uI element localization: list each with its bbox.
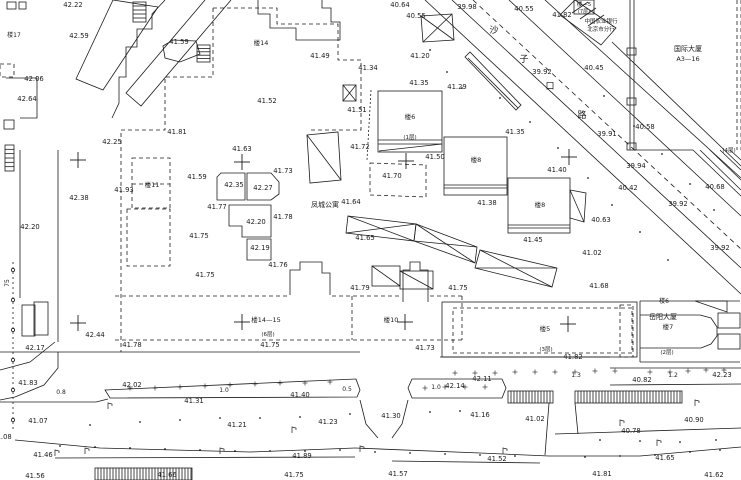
spot-elevation-label: 39.91 xyxy=(597,130,616,138)
point-dot xyxy=(599,439,601,441)
boundary-dashed-line xyxy=(213,8,361,85)
point-dot xyxy=(259,417,261,419)
building-outline xyxy=(7,2,16,9)
structure-line xyxy=(372,266,400,286)
structure-line xyxy=(575,403,578,434)
streetlamp-icon xyxy=(55,450,59,456)
spot-elevation-label: 42.20 xyxy=(20,223,39,231)
spot-elevation-label: 41.59 xyxy=(187,173,206,181)
point-dot xyxy=(164,448,166,450)
building-number-label: (1层) xyxy=(403,134,416,141)
place-name-label: 75 xyxy=(4,279,11,287)
structure-line xyxy=(0,352,58,400)
spot-elevation-label: 42.22 xyxy=(63,1,82,9)
building-number-label: 楼6 xyxy=(405,112,416,121)
spot-elevation-label: 42.11 xyxy=(472,375,491,383)
spot-elevation-label: 41.30 xyxy=(381,412,400,420)
point-dot xyxy=(429,49,431,51)
spot-elevation-label: 41.93 xyxy=(114,186,133,194)
building-outline xyxy=(4,120,14,129)
structure-line xyxy=(545,403,549,455)
spot-elevation-label: 41.62 xyxy=(704,471,723,479)
spot-elevation-label: 39.92 xyxy=(710,244,729,252)
spot-elevation-label: 41.78 xyxy=(273,213,292,221)
point-dot xyxy=(529,121,531,123)
spot-elevation-label: 41.49 xyxy=(310,52,329,60)
building-number-label: (2层) xyxy=(660,349,673,356)
spot-elevation-label: 41.20 xyxy=(410,52,429,60)
spot-elevation-label: 41.35 xyxy=(409,79,428,87)
spot-elevation-label: 41.16 xyxy=(470,411,489,419)
point-dot xyxy=(479,454,481,456)
streetlamp-icon xyxy=(85,448,89,454)
spot-elevation-label: 41.81 xyxy=(167,128,186,136)
point-dot xyxy=(667,259,669,261)
point-dot xyxy=(689,451,691,453)
building-number-label: 楼11 xyxy=(145,180,160,189)
building-outline xyxy=(627,48,636,55)
structure-line xyxy=(700,315,717,348)
spot-elevation-label: 41.59 xyxy=(169,38,188,46)
point-dot xyxy=(374,451,376,453)
point-dot xyxy=(429,411,431,413)
spot-elevation-label: 42.17 xyxy=(25,344,44,352)
point-dot xyxy=(619,455,621,457)
streetlamp-icon xyxy=(657,440,661,446)
site-plan-canvas[interactable]: 42.2242.5941.5942.0642.6441.4941.3441.52… xyxy=(0,0,741,480)
structure-line xyxy=(480,250,552,287)
spot-elevation-label: 41.75 xyxy=(189,232,208,240)
structure-line xyxy=(545,0,741,178)
distance-label: 0.5 xyxy=(342,386,352,393)
structure-line xyxy=(96,399,108,402)
hatched-wall xyxy=(95,468,192,480)
streetlamp-icon xyxy=(695,400,699,406)
spot-elevation-label: 41.40 xyxy=(290,391,309,399)
building-outline xyxy=(34,302,48,335)
spot-elevation-label: 41.76 xyxy=(268,261,287,269)
spot-elevation-label: 41.23 xyxy=(318,418,337,426)
spot-elevation-label: 41.34 xyxy=(358,64,377,72)
streetlamp-icon xyxy=(108,403,112,409)
streetlamp-icon xyxy=(292,427,296,433)
structure-line xyxy=(416,224,475,263)
spot-elevation-label: 39.92 xyxy=(532,68,551,76)
point-dot xyxy=(611,204,613,206)
building-number-label: 楼8 xyxy=(471,155,482,164)
spot-elevation-label: 42.38 xyxy=(69,194,88,202)
place-name-label: 国际大厦 xyxy=(674,44,702,53)
building-number-label: 楼8 xyxy=(535,200,546,209)
streetlamp-icon xyxy=(620,420,624,426)
spot-elevation-label: 41.40 xyxy=(547,166,566,174)
spot-elevation-label: 40.55 xyxy=(514,5,533,13)
spot-elevation-label: 41.52 xyxy=(257,97,276,105)
spot-elevation-label: 41.78 xyxy=(122,341,141,349)
spot-elevation-label: 41.35 xyxy=(505,128,524,136)
point-dot xyxy=(639,231,641,233)
structure-line xyxy=(570,190,584,222)
streetlamp-icon xyxy=(360,446,364,452)
spot-elevation-label: 41.70 xyxy=(382,172,401,180)
structure-line xyxy=(290,262,330,295)
structure-line xyxy=(468,58,518,108)
spot-elevation-label: 41.81 xyxy=(592,470,611,478)
structure-line xyxy=(695,301,727,312)
spot-elevation-label: 41.65 xyxy=(355,234,374,242)
distance-label: 1.2 xyxy=(668,372,678,379)
spot-elevation-label: 41.51 xyxy=(347,106,366,114)
spot-elevation-label: 41.07 xyxy=(28,417,47,425)
place-name-label: 岳阳大厦 xyxy=(649,312,677,321)
building-number-label: 楼10 xyxy=(384,315,399,324)
distance-label: 1.3 xyxy=(571,372,581,379)
spot-elevation-label: 41.50 xyxy=(425,153,444,161)
building-outline-dashed xyxy=(620,305,633,357)
point-dot xyxy=(139,421,141,423)
building-outline-dashed xyxy=(127,209,170,266)
spot-elevation-label: 40.45 xyxy=(584,64,603,72)
spot-elevation-label: 40.64 xyxy=(390,1,409,9)
spot-elevation-label: 41.75 xyxy=(284,471,303,479)
point-dot xyxy=(219,417,221,419)
spot-elevation-label: 39.92 xyxy=(668,200,687,208)
spot-elevation-label: 41.72 xyxy=(350,143,369,151)
structure-line xyxy=(346,224,416,233)
spot-elevation-label: 42.23 xyxy=(712,371,731,379)
spot-elevation-label: 41.56 xyxy=(25,472,44,480)
spot-elevation-label: 42.35 xyxy=(224,181,243,189)
spot-elevation-label: 42.64 xyxy=(17,95,36,103)
road-name-char: 子 xyxy=(519,54,528,65)
spot-elevation-label: 41.77 xyxy=(207,203,226,211)
point-dot xyxy=(199,449,201,451)
spot-elevation-label: 40.82 xyxy=(632,376,651,384)
spot-elevation-label: 39.98 xyxy=(457,3,476,11)
building-number-label: 楼6 xyxy=(659,297,669,305)
spot-elevation-label: 40.42 xyxy=(618,184,637,192)
point-dot xyxy=(444,453,446,455)
building-number-label: (6层) xyxy=(261,331,274,338)
point-dot xyxy=(587,177,589,179)
spot-elevation-label: 41.02 xyxy=(582,249,601,257)
streetlamp-icon xyxy=(503,448,507,454)
point-dot xyxy=(129,447,131,449)
building-outline xyxy=(444,137,507,195)
spot-elevation-label: 41.73 xyxy=(273,167,292,175)
spot-elevation-label: 41.57 xyxy=(388,470,407,478)
spot-elevation-label: 41.21 xyxy=(227,421,246,429)
building-outline-dashed xyxy=(0,64,14,77)
distance-label: 1.0 xyxy=(431,384,441,391)
building-outline xyxy=(22,305,35,336)
structure-line xyxy=(379,144,442,151)
point-dot xyxy=(446,71,448,73)
spot-elevation-label: 41.89 xyxy=(292,452,311,460)
structure-line xyxy=(403,262,428,302)
spot-elevation-label: 41.83 xyxy=(18,379,37,387)
point-dot xyxy=(179,419,181,421)
place-name-label: A3—16 xyxy=(676,55,699,63)
spot-elevation-label: 41.46 xyxy=(33,451,52,459)
spot-elevation-label: 42.25 xyxy=(102,138,121,146)
spot-elevation-label: 41.08 xyxy=(0,433,12,441)
building-number-label: (4层) xyxy=(722,147,735,154)
point-dot xyxy=(349,413,351,415)
road-name-char: 沙 xyxy=(489,25,498,36)
spot-elevation-label: 41.79 xyxy=(350,284,369,292)
point-dot xyxy=(689,183,691,185)
building-number-label: 楼7 xyxy=(663,322,674,331)
point-dot xyxy=(584,456,586,458)
point-dot xyxy=(719,449,721,451)
spot-elevation-label: 42.27 xyxy=(253,184,272,192)
road-name-char: 路 xyxy=(577,109,586,121)
point-dot xyxy=(339,449,341,451)
spot-elevation-label: 42.44 xyxy=(85,331,104,339)
spot-elevation-label: 42.14 xyxy=(445,382,464,390)
place-name-label: 中国农业银行 xyxy=(584,17,618,25)
spot-elevation-label: 41.82 xyxy=(563,353,582,361)
building-number-label: 楼—5 xyxy=(577,0,592,8)
spot-elevation-label: 41.66 xyxy=(157,471,176,479)
spot-elevation-label: 40.78 xyxy=(621,427,640,435)
point-dot xyxy=(299,416,301,418)
spot-elevation-label: 40.58 xyxy=(635,123,654,131)
building-outline xyxy=(718,313,740,328)
spot-elevation-label: 41.29 xyxy=(447,83,466,91)
spot-elevation-label: 41.75 xyxy=(448,284,467,292)
building-number-label: (7层) xyxy=(578,9,590,15)
cad-drawing-window: 42.2242.5941.5942.0642.6441.4941.3441.52… xyxy=(0,0,741,480)
boundary-dashed-line xyxy=(473,0,741,249)
structure-line xyxy=(105,379,360,398)
spot-elevation-label: 42.06 xyxy=(24,75,43,83)
point-dot xyxy=(514,455,516,457)
spot-elevation-label: 41.64 xyxy=(341,198,360,206)
structure-line xyxy=(126,0,231,106)
spot-elevation-label: 41.68 xyxy=(589,282,608,290)
building-outline xyxy=(378,91,442,152)
structure-line xyxy=(15,440,355,452)
point-dot xyxy=(94,446,96,448)
structure-line xyxy=(610,384,741,385)
spot-elevation-label: 40.55 xyxy=(406,12,425,20)
hatched-wall xyxy=(508,391,553,403)
spot-elevation-label: 41.75 xyxy=(195,271,214,279)
point-dot xyxy=(713,209,715,211)
spot-elevation-label: 40.63 xyxy=(591,216,610,224)
point-dot xyxy=(234,450,236,452)
point-dot xyxy=(639,440,641,442)
building-number-label: 楼17 xyxy=(7,31,21,39)
point-dot xyxy=(409,452,411,454)
stairs-symbol xyxy=(197,45,210,62)
place-name-label: 凤城公寓 xyxy=(311,200,339,209)
point-dot xyxy=(557,147,559,149)
spot-elevation-label: 41.65 xyxy=(655,454,674,462)
spot-elevation-label: 42.20 xyxy=(246,218,265,226)
building-number-label: (3层) xyxy=(539,346,552,353)
hatched-wall xyxy=(575,391,682,403)
spot-elevation-label: 41.31 xyxy=(184,397,203,405)
spot-elevation-label: 41.73 xyxy=(415,344,434,352)
spot-elevation-label: 42.19 xyxy=(250,244,269,252)
spot-elevation-label: 41.82 xyxy=(552,11,571,19)
spot-elevation-label: 40.90 xyxy=(684,416,703,424)
structure-line xyxy=(307,135,341,180)
building-outline xyxy=(627,98,636,105)
point-dot xyxy=(89,424,91,426)
spot-elevation-label: 40.68 xyxy=(705,183,724,191)
point-dot xyxy=(603,95,605,97)
point-dot xyxy=(269,450,271,452)
structure-line xyxy=(360,400,378,438)
spot-elevation-label: 41.75 xyxy=(260,341,279,349)
point-dot xyxy=(661,153,663,155)
point-dot xyxy=(715,439,717,441)
spot-elevation-label: 42.02 xyxy=(122,381,141,389)
point-dot xyxy=(459,410,461,412)
structure-line xyxy=(423,14,452,42)
building-outline xyxy=(19,2,26,9)
structure-line xyxy=(355,447,741,456)
point-dot xyxy=(59,445,61,447)
structure-line xyxy=(392,461,540,463)
place-name-label: 北京市分行 xyxy=(587,25,615,33)
spot-elevation-label: 41.02 xyxy=(525,415,544,423)
point-dot xyxy=(679,441,681,443)
spot-elevation-label: 39.94 xyxy=(626,162,645,170)
spot-elevation-label: 41.63 xyxy=(232,145,251,153)
point-dot xyxy=(499,97,501,99)
spot-elevation-label: 41.52 xyxy=(487,455,506,463)
building-number-label: 楼14—15 xyxy=(251,315,281,324)
distance-label: 0.8 xyxy=(56,389,66,396)
distance-label: 1.0 xyxy=(219,387,229,394)
spot-elevation-label: 41.38 xyxy=(477,199,496,207)
structure-line xyxy=(555,428,741,434)
spot-elevation-label: 41.45 xyxy=(523,236,542,244)
building-outline xyxy=(718,334,740,349)
boundary-dashed-line xyxy=(370,163,426,197)
building-number-label: 楼5 xyxy=(540,324,551,333)
road-name-char: 口 xyxy=(545,82,554,92)
building-number-label: 楼14 xyxy=(254,38,269,47)
structure-line xyxy=(258,0,340,40)
spot-elevation-label: 42.59 xyxy=(69,32,88,40)
